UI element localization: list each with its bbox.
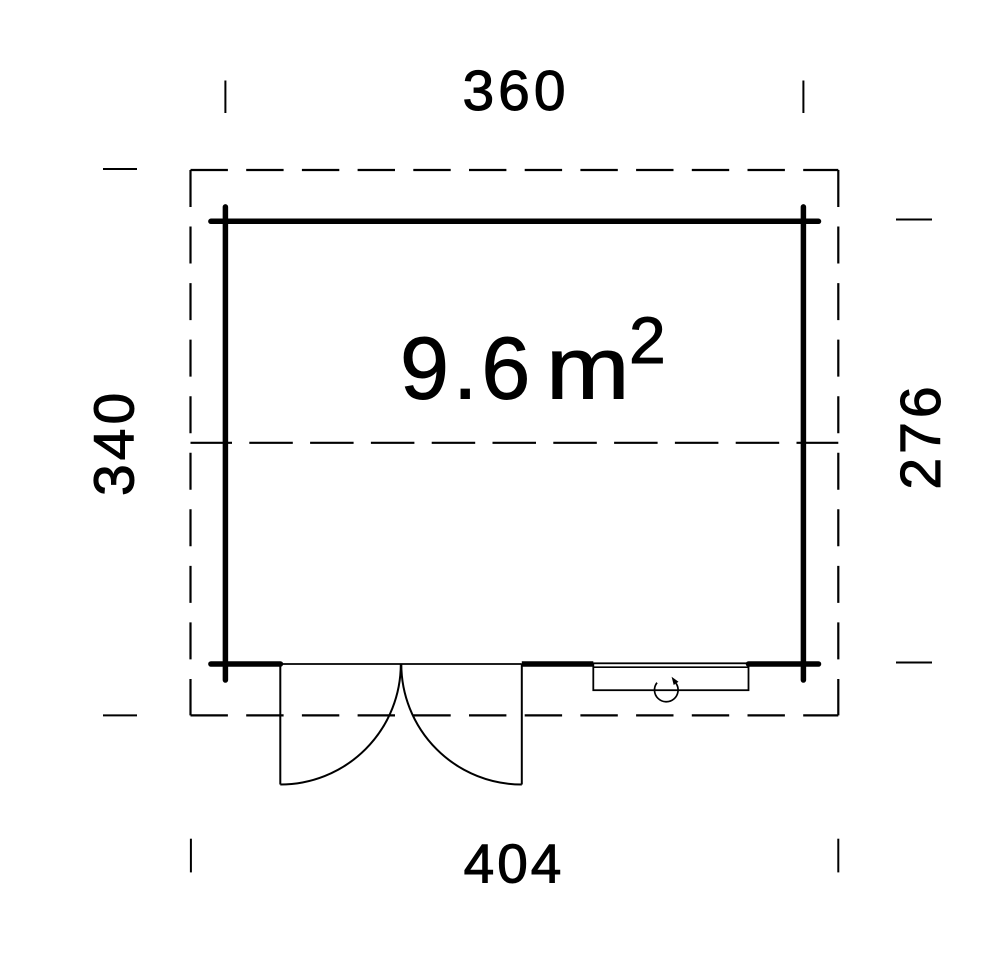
- svg-text:360: 360: [462, 59, 569, 123]
- svg-text:m: m: [546, 319, 630, 417]
- svg-text:340: 340: [83, 389, 147, 496]
- svg-text:2: 2: [629, 303, 666, 377]
- svg-text:404: 404: [464, 833, 565, 895]
- svg-text:9.6: 9.6: [400, 318, 534, 417]
- svg-text:276: 276: [889, 382, 953, 489]
